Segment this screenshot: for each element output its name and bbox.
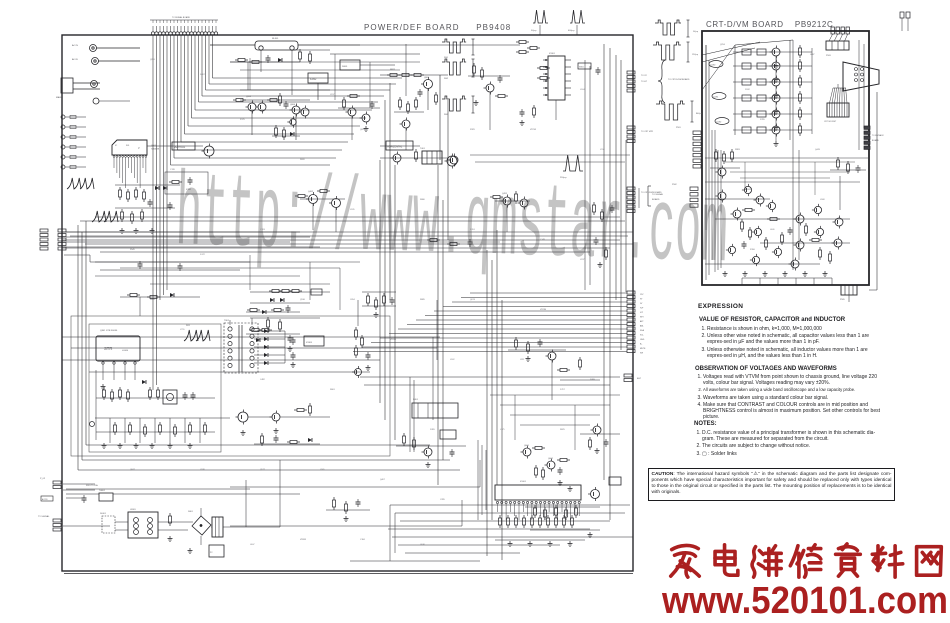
svg-text:TV SIGNAL: TV SIGNAL [38, 515, 50, 518]
svg-text:F801 T3.15A: F801 T3.15A [86, 484, 98, 487]
svg-text:Q451: Q451 [502, 193, 508, 195]
svg-text:L607: L607 [250, 544, 255, 546]
svg-text:CRT-D/VM BOARD PB9212C: CRT-D/VM BOARD PB9212C [706, 20, 833, 29]
svg-text:C482: C482 [260, 379, 266, 381]
svg-text:C285: C285 [440, 499, 446, 501]
svg-text:Q407: Q407 [380, 479, 386, 481]
svg-text:TV SIGNAL BOARD: TV SIGNAL BOARD [172, 16, 191, 19]
svg-text:-F6656: -F6656 [122, 350, 128, 352]
svg-text:IC803: IC803 [306, 342, 313, 344]
svg-text:Q530: Q530 [300, 299, 306, 301]
svg-text:POWER/DEF BOARD PB9408: POWER/DEF BOARD PB9408 [364, 23, 511, 32]
svg-text:P_02: P_02 [40, 478, 46, 480]
svg-text:P901: P901 [676, 127, 682, 129]
svg-text:12Vp-p: 12Vp-p [692, 54, 698, 56]
svg-text:VERTICAL: VERTICAL [174, 146, 186, 149]
svg-text:BOARD: BOARD [872, 139, 879, 142]
svg-text:D805: D805 [342, 66, 348, 68]
svg-text:IC: IC [115, 145, 118, 147]
svg-text:C2080: C2080 [710, 65, 715, 67]
svg-text:LF801: LF801 [130, 509, 137, 511]
svg-text:Q601: Q601 [524, 445, 530, 447]
svg-text:H-P: H-P [640, 308, 644, 310]
svg-text:R661: R661 [330, 389, 336, 391]
svg-text:L609: L609 [770, 229, 775, 231]
svg-text:VR165: VR165 [390, 339, 397, 341]
svg-text:R883: R883 [735, 149, 741, 151]
svg-text:D767: D767 [200, 74, 206, 76]
svg-text:KEY: KEY [640, 317, 645, 319]
svg-text:Q804: Q804 [290, 104, 296, 106]
svg-text:R685: R685 [420, 299, 426, 301]
svg-text:5Vp-p: 5Vp-p [693, 31, 698, 33]
svg-text:SW: SW [640, 353, 643, 355]
svg-text:P903: P903 [826, 55, 832, 57]
svg-text:Q256: Q256 [720, 44, 726, 46]
svg-text:C654: C654 [350, 299, 356, 301]
svg-text:L311: L311 [520, 359, 525, 361]
svg-text:PC: PC [210, 552, 213, 554]
svg-text:D395: D395 [430, 429, 436, 431]
svg-text:9V: 9V [640, 299, 643, 301]
svg-text:EHT: EHT [637, 378, 642, 380]
svg-text:MUTE: MUTE [640, 348, 646, 350]
svg-text:D801: D801 [188, 511, 194, 513]
svg-text:C139: C139 [170, 169, 176, 171]
svg-text:IC601: IC601 [520, 481, 527, 483]
svg-text:R175: R175 [240, 119, 246, 121]
svg-text:RL801: RL801 [272, 38, 279, 40]
svg-text:D532: D532 [745, 89, 751, 91]
svg-text:T801: T801 [224, 320, 230, 322]
svg-text:VR743: VR743 [530, 129, 537, 131]
svg-text:AC220: AC220 [42, 498, 48, 501]
svg-text:DL801: DL801 [100, 513, 107, 515]
svg-text:TO HT: TO HT [641, 81, 648, 83]
svg-text:TO V2: TO V2 [641, 75, 648, 77]
svg-text:TH801: TH801 [99, 490, 106, 492]
svg-text:AC IN: AC IN [72, 44, 78, 47]
svg-text:L162: L162 [450, 359, 455, 361]
svg-text:GND: GND [640, 339, 645, 341]
svg-text:L700: L700 [600, 149, 605, 151]
svg-text:MAINS: MAINS [56, 96, 63, 99]
svg-text:Q806: Q806 [424, 77, 430, 79]
svg-text:CRT SOCKET: CRT SOCKET [824, 121, 837, 123]
svg-text:5Vp-p: 5Vp-p [531, 30, 537, 32]
svg-text:BOARD: BOARD [652, 198, 660, 201]
svg-text:Q255: Q255 [150, 59, 156, 61]
svg-text:R785: R785 [760, 119, 766, 121]
svg-text:Q674: Q674 [470, 299, 476, 301]
svg-text:R625: R625 [560, 429, 566, 431]
svg-text:80Vp-p: 80Vp-p [696, 113, 702, 115]
svg-text:IC302: IC302 [186, 189, 191, 191]
svg-text:TO CRT-D/VM BOARD: TO CRT-D/VM BOARD [641, 191, 662, 194]
svg-text:25Vp-p: 25Vp-p [560, 177, 567, 179]
svg-text:www.520101.com: www.520101.com [661, 580, 948, 622]
svg-text:SDA: SDA [640, 329, 645, 332]
svg-text:12V: 12V [640, 294, 644, 296]
svg-text:P401: P401 [413, 399, 419, 401]
svg-text:X801: X801 [579, 67, 585, 69]
svg-text:C2082: C2082 [716, 122, 721, 124]
svg-text:L568: L568 [820, 199, 825, 201]
svg-text:B+: B+ [640, 344, 643, 346]
svg-text:VR286: VR286 [540, 309, 547, 311]
svg-text:TO FLYBACK: TO FLYBACK [872, 134, 884, 137]
svg-text:SCL: SCL [640, 335, 644, 337]
svg-text:VR899: VR899 [300, 539, 307, 541]
svg-text:L687: L687 [810, 54, 815, 56]
svg-text:TO CRT HTR: TO CRT HTR [641, 131, 654, 133]
svg-text:ABL: ABL [640, 325, 644, 328]
svg-text:P905: P905 [840, 299, 846, 301]
svg-text:L164: L164 [580, 89, 585, 91]
svg-text:L197: L197 [330, 94, 335, 96]
svg-text:IC801: IC801 [549, 53, 556, 55]
svg-text:Q602: Q602 [548, 458, 554, 460]
svg-text:301: 301 [126, 145, 130, 147]
svg-text:STR: STR [104, 346, 112, 351]
svg-text:R329: R329 [470, 129, 476, 131]
svg-text:R545: R545 [130, 249, 136, 251]
svg-text:Q801 STR-F6656: Q801 STR-F6656 [100, 330, 118, 332]
svg-text:Q803: Q803 [246, 96, 252, 98]
svg-text:TA8403K: TA8403K [151, 148, 160, 151]
svg-text:AV IN: AV IN [72, 58, 78, 61]
svg-text:W02: W02 [444, 78, 449, 80]
svg-text:R696: R696 [150, 299, 156, 301]
svg-text:T461: T461 [420, 148, 426, 150]
svg-text:http://www.qmstar.com: http://www.qmstar.com [174, 157, 729, 292]
svg-text:5V: 5V [640, 303, 643, 305]
svg-text:V-P: V-P [640, 312, 644, 314]
svg-text:Q402: Q402 [308, 191, 314, 193]
svg-text:IC802: IC802 [310, 78, 317, 81]
svg-text:R196: R196 [750, 249, 756, 251]
svg-text:TO CRT-D/VM BOARD: TO CRT-D/VM BOARD [668, 78, 690, 81]
svg-text:D797: D797 [560, 389, 566, 391]
svg-text:60Vp-p: 60Vp-p [568, 30, 575, 32]
svg-text:AFT: AFT [640, 320, 644, 323]
svg-text:Q449: Q449 [815, 149, 821, 151]
svg-text:W11: W11 [186, 325, 191, 327]
svg-text:V: V [138, 147, 140, 150]
svg-text:C2081: C2081 [713, 97, 718, 99]
svg-text:L175: L175 [500, 429, 505, 431]
svg-text:L755: L755 [180, 329, 185, 331]
svg-text:C184: C184 [360, 539, 366, 541]
